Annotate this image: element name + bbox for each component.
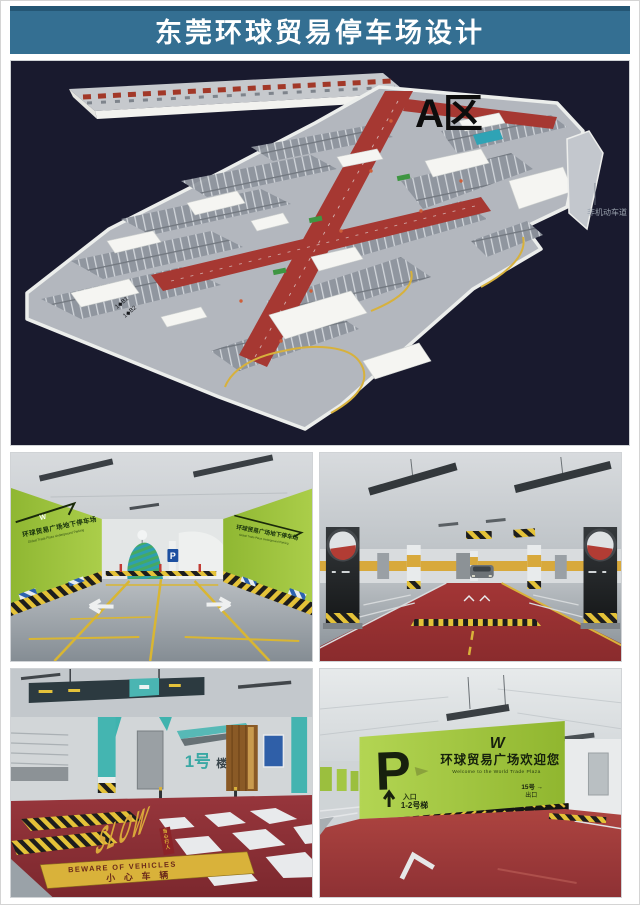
p4-left-distant-stalls [320,761,361,819]
p3-metal-door [137,731,163,789]
zone-a-label: A区 [415,92,482,136]
p2-left-column [323,527,362,629]
nonmotor-lane-annotation: 非机动车道 [587,207,627,217]
poster-page: 东莞环球贸易停车场设计 [0,0,640,905]
p3-building-suffix: 楼 [216,756,227,770]
p4-red-floor [320,809,622,897]
photo-welcome-wall[interactable]: P 入口 1-2号梯 W 环球贸易广场欢迎您 Welcome to the Wo… [319,668,622,898]
p4-entrance-no: 1-2号梯 [401,800,428,810]
p2-car [470,565,494,578]
p3-building-no: 1号 [185,752,211,771]
p2-right-column [581,527,620,629]
photo-crosswalk[interactable]: 1号 楼 [10,668,313,898]
p4-exit-no: 15号 → [521,782,543,791]
p3-wooden-door [226,725,258,791]
page-title: 东莞环球贸易停车场设计 [155,11,485,50]
title-bar: 东莞环球贸易停车场设计 [10,6,630,54]
photo-entrance-ramp[interactable]: P W 环球贸易广场地下停车场 Global Trade Plaza Under… [10,452,313,662]
p4-logo: W [490,735,507,752]
p4-welcome-cn: 环球贸易广场欢迎您 [440,752,560,767]
photo-red-lane[interactable] [319,452,622,662]
p4-big-p: P [374,740,412,802]
p3-notice-board [264,735,284,767]
p4-welcome-en: Welcome to the World Trade Plaza [452,769,540,775]
p4-entrance-label: 入口 [402,793,417,801]
p4-exit-label: 出口 [525,791,537,799]
photo-grid: P W 环球贸易广场地下停车场 Global Trade Plaza Under… [10,452,630,898]
p4-right-door [588,753,608,795]
plan-3d-image[interactable]: A区 非机动车道 1◆B1 1◆B2 [10,60,630,446]
p1-p-sign: P [170,551,176,561]
